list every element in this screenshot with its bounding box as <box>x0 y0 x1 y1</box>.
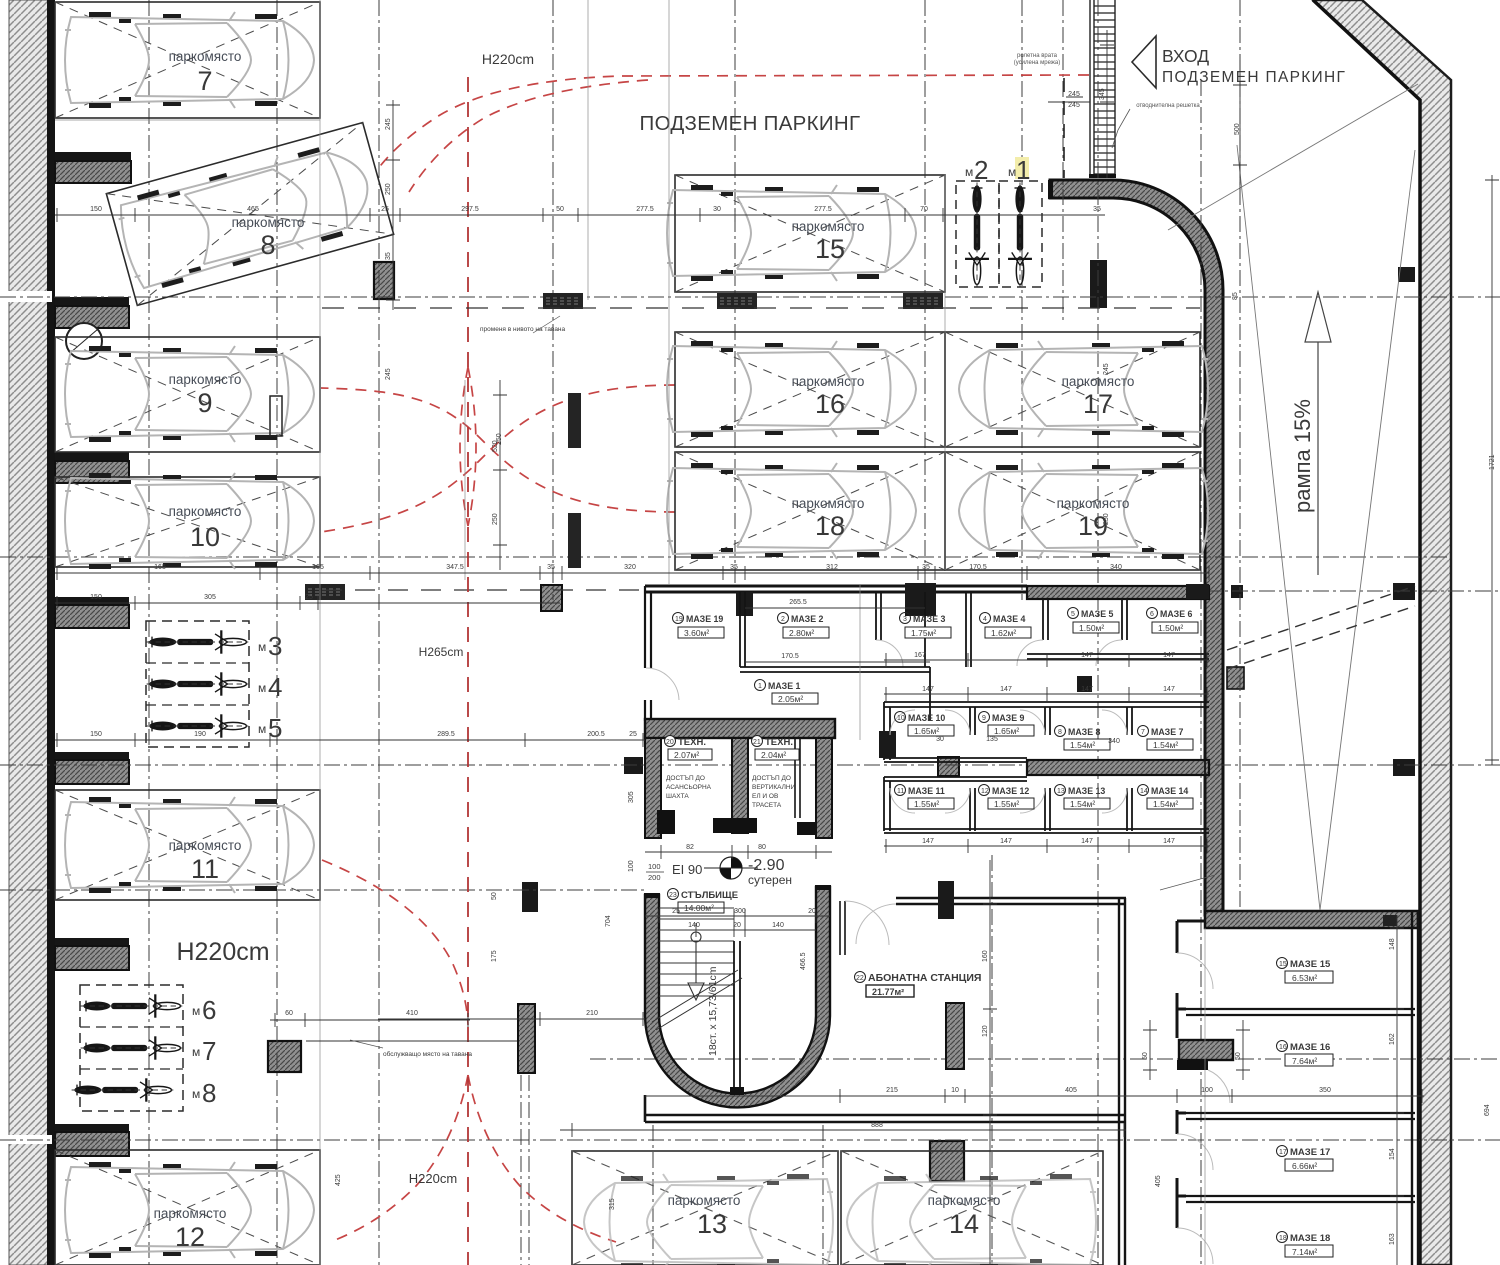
svg-text:МАЗЕ 1: МАЗЕ 1 <box>768 681 801 691</box>
svg-text:2.05м²: 2.05м² <box>778 694 803 704</box>
svg-text:паркомясто: паркомясто <box>154 1206 227 1221</box>
svg-text:147: 147 <box>922 838 934 845</box>
svg-text:1.54м²: 1.54м² <box>1070 799 1095 809</box>
svg-text:м: м <box>192 1087 200 1101</box>
svg-text:1.65м²: 1.65м² <box>994 726 1019 736</box>
svg-text:ВЕРТИКАЛНИ: ВЕРТИКАЛНИ <box>752 784 796 791</box>
svg-text:165: 165 <box>154 564 166 571</box>
svg-text:1.75м²: 1.75м² <box>911 628 936 638</box>
svg-text:704: 704 <box>605 915 612 927</box>
svg-text:305: 305 <box>628 791 635 803</box>
svg-text:3: 3 <box>268 631 282 661</box>
svg-text:9: 9 <box>982 715 986 722</box>
svg-text:147: 147 <box>1163 686 1175 693</box>
svg-text:245: 245 <box>1068 102 1080 109</box>
svg-text:АСАНСЬОРНА: АСАНСЬОРНА <box>666 784 712 791</box>
svg-text:312: 312 <box>826 564 838 571</box>
svg-text:21: 21 <box>753 739 761 746</box>
svg-text:405: 405 <box>1155 1175 1162 1187</box>
svg-text:МАЗЕ 13: МАЗЕ 13 <box>1068 786 1105 796</box>
svg-text:4: 4 <box>983 616 987 623</box>
svg-text:3: 3 <box>903 616 907 623</box>
svg-text:147: 147 <box>1081 652 1093 659</box>
svg-text:16: 16 <box>1279 1044 1287 1051</box>
svg-text:70: 70 <box>920 206 928 213</box>
svg-text:МАЗЕ 3: МАЗЕ 3 <box>913 614 946 624</box>
svg-text:19: 19 <box>675 616 683 623</box>
svg-text:H220cm: H220cm <box>482 51 534 67</box>
svg-text:ПОДЗЕМЕН ПАРКИНГ: ПОДЗЕМЕН ПАРКИНГ <box>640 112 861 135</box>
svg-text:МАЗЕ 8: МАЗЕ 8 <box>1068 727 1101 737</box>
svg-text:50: 50 <box>1142 1052 1149 1060</box>
svg-text:МАЗЕ 7: МАЗЕ 7 <box>1151 727 1184 737</box>
svg-text:2: 2 <box>781 616 785 623</box>
svg-text:20: 20 <box>666 739 674 746</box>
svg-text:425: 425 <box>335 1174 342 1186</box>
svg-text:60: 60 <box>285 1010 293 1017</box>
svg-text:147: 147 <box>1163 652 1175 659</box>
svg-text:297.5: 297.5 <box>461 206 479 213</box>
svg-text:м: м <box>192 1004 200 1018</box>
svg-text:345: 345 <box>1099 88 1106 100</box>
svg-text:150: 150 <box>90 206 102 213</box>
svg-text:888: 888 <box>871 1122 883 1129</box>
svg-text:6: 6 <box>1150 611 1154 618</box>
svg-text:154: 154 <box>1389 1148 1396 1160</box>
svg-text:13: 13 <box>1057 788 1065 795</box>
svg-text:H265cm: H265cm <box>419 645 464 659</box>
svg-text:82: 82 <box>686 844 694 851</box>
svg-text:паркомясто: паркомясто <box>169 372 242 387</box>
svg-text:ДОСТЪП ДО: ДОСТЪП ДО <box>666 775 705 782</box>
svg-text:м: м <box>1008 165 1016 179</box>
svg-text:СТЪЛБИЩЕ: СТЪЛБИЩЕ <box>681 890 738 901</box>
svg-text:694: 694 <box>1484 1104 1491 1116</box>
svg-text:100: 100 <box>1201 1087 1213 1094</box>
svg-text:300: 300 <box>734 908 746 915</box>
svg-text:147: 147 <box>922 686 934 693</box>
svg-text:85: 85 <box>1232 292 1239 300</box>
svg-text:МАЗЕ 18: МАЗЕ 18 <box>1290 1233 1330 1244</box>
svg-text:10: 10 <box>951 1087 959 1094</box>
svg-text:H220cm: H220cm <box>409 1171 457 1186</box>
svg-text:150: 150 <box>90 731 102 738</box>
svg-text:466.5: 466.5 <box>800 952 807 970</box>
svg-text:м: м <box>258 722 266 736</box>
svg-text:120: 120 <box>982 1025 989 1037</box>
svg-text:140: 140 <box>772 922 784 929</box>
svg-text:340: 340 <box>1108 738 1120 745</box>
svg-text:250: 250 <box>385 183 392 195</box>
svg-text:165: 165 <box>312 564 324 571</box>
svg-text:6.66м²: 6.66м² <box>1292 1161 1317 1171</box>
svg-text:6.53м²: 6.53м² <box>1292 973 1317 983</box>
svg-text:20: 20 <box>733 922 741 929</box>
svg-text:МАЗЕ 6: МАЗЕ 6 <box>1160 609 1193 619</box>
svg-text:25: 25 <box>305 594 313 601</box>
svg-text:3.60м²: 3.60м² <box>684 628 709 638</box>
svg-text:EI 90: EI 90 <box>672 862 702 877</box>
svg-text:305: 305 <box>204 594 216 601</box>
svg-text:H220cm: H220cm <box>176 938 269 966</box>
svg-text:7: 7 <box>197 66 212 96</box>
svg-text:7: 7 <box>202 1036 216 1066</box>
svg-text:250: 250 <box>1103 513 1110 525</box>
svg-text:2.80м²: 2.80м² <box>789 628 814 638</box>
svg-text:14: 14 <box>949 1209 979 1239</box>
svg-text:35: 35 <box>385 252 392 260</box>
svg-text:ТЕХН.: ТЕХН. <box>765 737 793 748</box>
svg-text:100: 100 <box>648 862 661 871</box>
svg-text:ВХОД: ВХОД <box>1162 46 1209 66</box>
svg-text:30: 30 <box>713 206 721 213</box>
svg-text:250: 250 <box>492 513 499 525</box>
svg-text:405: 405 <box>1065 1087 1077 1094</box>
svg-text:23: 23 <box>669 892 677 899</box>
svg-text:265.5: 265.5 <box>789 599 807 606</box>
svg-text:1.55м²: 1.55м² <box>994 799 1019 809</box>
svg-text:1.55м²: 1.55м² <box>914 799 939 809</box>
svg-text:паркомясто: паркомясто <box>792 219 865 234</box>
svg-text:245: 245 <box>1103 363 1110 375</box>
svg-text:17: 17 <box>1279 1149 1287 1156</box>
svg-text:13: 13 <box>697 1209 727 1239</box>
svg-text:35: 35 <box>922 564 930 571</box>
svg-text:м: м <box>965 165 973 179</box>
svg-text:1.54м²: 1.54м² <box>1153 740 1178 750</box>
svg-text:(усилена мрежа): (усилена мрежа) <box>1014 60 1061 66</box>
svg-text:22: 22 <box>856 975 864 982</box>
svg-text:163: 163 <box>1389 1233 1396 1245</box>
svg-text:4: 4 <box>268 672 282 702</box>
svg-text:50: 50 <box>491 892 498 900</box>
svg-text:245: 245 <box>1068 91 1080 98</box>
svg-text:-2.90: -2.90 <box>748 857 785 874</box>
svg-text:1.65м²: 1.65м² <box>914 726 939 736</box>
svg-text:2.04м²: 2.04м² <box>761 750 786 760</box>
svg-text:1: 1 <box>1016 155 1030 185</box>
svg-text:1: 1 <box>758 683 762 690</box>
svg-text:МАЗЕ 17: МАЗЕ 17 <box>1290 1147 1330 1158</box>
svg-text:ЕЛ И ОВ: ЕЛ И ОВ <box>752 793 778 800</box>
svg-text:200.5: 200.5 <box>587 731 605 738</box>
svg-text:190: 190 <box>194 731 206 738</box>
svg-text:ТЕХН.: ТЕХН. <box>678 737 706 748</box>
svg-text:160: 160 <box>982 950 989 962</box>
svg-text:МАЗЕ 14: МАЗЕ 14 <box>1151 786 1188 796</box>
svg-text:11: 11 <box>191 854 219 884</box>
svg-text:15: 15 <box>1279 961 1287 968</box>
svg-text:347.5: 347.5 <box>446 564 464 571</box>
svg-text:350: 350 <box>1319 1087 1331 1094</box>
svg-text:320: 320 <box>624 564 636 571</box>
svg-text:147: 147 <box>1000 838 1012 845</box>
svg-text:ролетна врата: ролетна врата <box>1017 53 1058 59</box>
svg-text:25: 25 <box>381 206 389 213</box>
svg-text:167: 167 <box>914 652 926 659</box>
svg-text:м: м <box>258 681 266 695</box>
svg-text:50: 50 <box>1235 1052 1242 1060</box>
svg-text:паркомясто: паркомясто <box>232 215 305 230</box>
svg-text:7.14м²: 7.14м² <box>1292 1247 1317 1257</box>
svg-text:паркомясто: паркомясто <box>792 496 865 511</box>
svg-text:м: м <box>192 1045 200 1059</box>
svg-text:6: 6 <box>202 995 216 1025</box>
svg-text:30: 30 <box>936 736 944 743</box>
svg-text:сутерен: сутерен <box>748 873 792 887</box>
svg-text:МАЗЕ 2: МАЗЕ 2 <box>791 614 824 624</box>
svg-text:410: 410 <box>406 1010 418 1017</box>
svg-text:170.5: 170.5 <box>781 653 799 660</box>
svg-text:210: 210 <box>586 1010 598 1017</box>
svg-text:2.07м²: 2.07м² <box>674 750 699 760</box>
svg-text:14: 14 <box>1140 788 1148 795</box>
svg-text:147: 147 <box>1081 838 1093 845</box>
svg-text:245: 245 <box>385 368 392 380</box>
svg-text:465: 465 <box>247 206 259 213</box>
svg-text:250: 250 <box>496 433 503 445</box>
svg-text:35: 35 <box>730 564 738 571</box>
svg-text:147: 147 <box>1000 686 1012 693</box>
svg-text:277.5: 277.5 <box>814 206 832 213</box>
svg-text:11: 11 <box>897 788 904 795</box>
svg-text:паркомясто: паркомясто <box>169 838 242 853</box>
svg-text:215: 215 <box>886 1087 898 1094</box>
svg-text:1.50м²: 1.50м² <box>1158 623 1183 633</box>
svg-text:277.5: 277.5 <box>636 206 654 213</box>
svg-text:7: 7 <box>1141 729 1145 736</box>
svg-text:200: 200 <box>648 873 661 882</box>
svg-text:МАЗЕ 16: МАЗЕ 16 <box>1290 1042 1330 1053</box>
svg-text:15: 15 <box>815 234 845 264</box>
svg-text:1.54м²: 1.54м² <box>1070 740 1095 750</box>
svg-text:1.50м²: 1.50м² <box>1079 623 1104 633</box>
svg-text:148: 148 <box>1389 938 1396 950</box>
svg-text:245: 245 <box>385 118 392 130</box>
svg-text:25: 25 <box>672 908 680 915</box>
svg-text:рампа 15%: рампа 15% <box>1290 399 1315 513</box>
svg-text:147: 147 <box>1081 686 1093 693</box>
svg-text:МАЗЕ 12: МАЗЕ 12 <box>992 786 1029 796</box>
svg-text:паркомясто: паркомясто <box>792 374 865 389</box>
svg-text:7.64м²: 7.64м² <box>1292 1056 1317 1066</box>
svg-text:17: 17 <box>1083 389 1113 419</box>
svg-text:16: 16 <box>815 389 845 419</box>
svg-text:ПОДЗЕМЕН ПАРКИНГ: ПОДЗЕМЕН ПАРКИНГ <box>1162 69 1346 86</box>
svg-text:1721: 1721 <box>1489 454 1496 470</box>
svg-text:9: 9 <box>197 388 212 418</box>
svg-text:паркомясто: паркомясто <box>1057 496 1130 511</box>
svg-text:12: 12 <box>175 1222 205 1252</box>
svg-text:АБОНАТНА СТАНЦИЯ: АБОНАТНА СТАНЦИЯ <box>868 972 981 984</box>
svg-text:1.62м²: 1.62м² <box>991 628 1016 638</box>
svg-text:21.77м²: 21.77м² <box>872 987 904 997</box>
svg-text:м: м <box>258 640 266 654</box>
svg-text:МАЗЕ 19: МАЗЕ 19 <box>686 614 723 624</box>
svg-text:8: 8 <box>1058 729 1062 736</box>
svg-text:5: 5 <box>1071 611 1075 618</box>
svg-text:обслужващо място на тавана: обслужващо място на тавана <box>383 1050 472 1058</box>
svg-text:ТРАСЕТА: ТРАСЕТА <box>752 802 782 809</box>
svg-text:80: 80 <box>758 844 766 851</box>
svg-text:25: 25 <box>629 731 637 738</box>
svg-text:8: 8 <box>260 230 275 260</box>
svg-text:паркомясто: паркомясто <box>169 504 242 519</box>
svg-text:10: 10 <box>190 522 220 552</box>
svg-text:МАЗЕ 5: МАЗЕ 5 <box>1081 609 1114 619</box>
svg-text:315: 315 <box>609 1198 616 1210</box>
svg-text:ШАХТА: ШАХТА <box>666 793 689 800</box>
svg-text:500: 500 <box>1234 123 1241 135</box>
svg-text:147: 147 <box>1163 838 1175 845</box>
svg-text:МАЗЕ 9: МАЗЕ 9 <box>992 713 1025 723</box>
svg-text:50: 50 <box>556 206 564 213</box>
svg-text:8: 8 <box>202 1078 216 1108</box>
svg-text:променя в нивото на тавана: променя в нивото на тавана <box>480 326 566 333</box>
svg-text:10: 10 <box>897 715 905 722</box>
svg-text:340: 340 <box>1110 564 1122 571</box>
svg-text:паркомясто: паркомясто <box>668 1193 741 1208</box>
svg-text:МАЗЕ 4: МАЗЕ 4 <box>993 614 1026 624</box>
svg-text:отводнителна решетка: отводнителна решетка <box>1136 103 1200 109</box>
svg-text:162: 162 <box>1389 1033 1396 1045</box>
svg-text:МАЗЕ 15: МАЗЕ 15 <box>1290 959 1331 970</box>
svg-text:150: 150 <box>90 594 102 601</box>
svg-text:1.54м²: 1.54м² <box>1153 799 1178 809</box>
svg-text:20: 20 <box>808 908 816 915</box>
svg-text:100: 100 <box>628 860 635 872</box>
svg-text:289.5: 289.5 <box>437 731 455 738</box>
svg-text:18: 18 <box>815 511 845 541</box>
svg-text:паркомясто: паркомясто <box>1062 374 1135 389</box>
svg-text:135: 135 <box>986 736 998 743</box>
svg-text:175: 175 <box>491 950 498 962</box>
svg-text:35: 35 <box>1093 206 1101 213</box>
svg-text:МАЗЕ 10: МАЗЕ 10 <box>908 713 945 723</box>
svg-text:170.5: 170.5 <box>969 564 987 571</box>
svg-text:паркомясто: паркомясто <box>169 49 242 64</box>
svg-text:140: 140 <box>688 922 700 929</box>
svg-text:35: 35 <box>547 564 555 571</box>
svg-text:12: 12 <box>981 788 989 795</box>
svg-text:18: 18 <box>1279 1235 1287 1242</box>
svg-text:МАЗЕ 11: МАЗЕ 11 <box>908 786 945 796</box>
svg-text:ДОСТЪП ДО: ДОСТЪП ДО <box>752 775 791 782</box>
svg-text:18ст. x 15,73/61cm: 18ст. x 15,73/61cm <box>707 966 719 1056</box>
svg-text:2: 2 <box>974 155 988 185</box>
svg-text:паркомясто: паркомясто <box>928 1193 1001 1208</box>
